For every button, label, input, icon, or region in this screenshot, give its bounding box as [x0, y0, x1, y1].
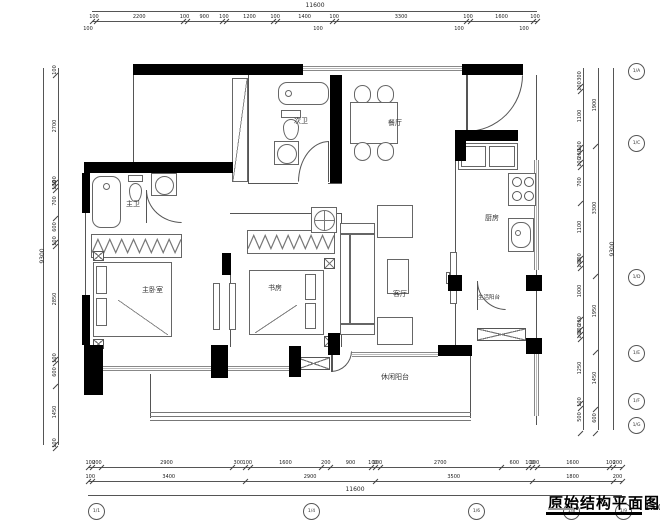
sofa-armrest-bottom: [340, 324, 375, 335]
wall-kitchen-top: [455, 130, 518, 141]
wall-top-left: [133, 64, 303, 75]
bed-master-pillow-1: [96, 266, 107, 294]
title-underline-accent: [548, 508, 574, 510]
dim-label: 100: [52, 430, 58, 456]
wall-pier-bottom-mid: [211, 345, 228, 378]
nightstand-study-1: [324, 258, 335, 269]
washer-icon: [477, 328, 526, 341]
balcony-edge-right: [470, 353, 471, 418]
dim-tick: [578, 431, 584, 437]
wall-right-pier-2: [526, 338, 542, 354]
dim-label: 1000: [577, 278, 583, 304]
dim-label: 200: [605, 460, 631, 466]
dim-line: [88, 467, 622, 468]
bed-study-pillow-1: [305, 274, 316, 300]
coffee-table: [387, 259, 409, 294]
dim-label: 100: [521, 460, 547, 466]
floor-plan-canvas: 1002200100900100120010014001003300100160…: [0, 0, 660, 529]
dim-line: [88, 481, 622, 482]
wall-bedroom-divider-pier: [222, 253, 231, 275]
dim-sub-label: 100: [75, 26, 101, 32]
wall-bath2-left: [248, 75, 249, 183]
dim-label: 100: [52, 57, 58, 83]
room-label-kitchen: 厨房: [485, 214, 499, 222]
dim-label: 1600: [489, 14, 515, 20]
wall-masterbath-top: [84, 162, 233, 173]
sofa-seat: [350, 234, 375, 324]
dim-label: 100: [262, 14, 288, 20]
wall-living-south: [438, 345, 472, 356]
plant-cross-icon: [314, 210, 334, 230]
dim-label: 1400: [292, 14, 318, 20]
dim-label: 600: [52, 359, 58, 385]
room-label-master-bedroom: 主卧室: [142, 286, 163, 294]
kitchen-sink-basin-icon: [511, 222, 531, 248]
dim-label: 200: [84, 460, 110, 466]
dim-label: 100: [577, 250, 583, 276]
wardrobe-study: [247, 230, 335, 254]
dim-label: 1250: [577, 355, 583, 381]
stove-burner-1: [512, 177, 522, 187]
wall-bedroom-divider-b: [230, 330, 231, 347]
dim-label: 700: [52, 188, 58, 214]
window-svcbalcony-east: [534, 354, 539, 416]
bedroom-door-panel-2: [229, 283, 236, 330]
dim-label: 1450: [592, 365, 598, 391]
wall-pier-bottom-left: [84, 345, 103, 395]
wall-pier-balcony-door: [328, 333, 340, 355]
room-label-master-bath: 主卫: [126, 200, 140, 208]
dim-label: 200: [313, 460, 339, 466]
dim-label: 700: [577, 169, 583, 195]
bed-study-pillow-2: [305, 303, 316, 329]
dim-overall-right: 9300: [610, 231, 616, 267]
dim-label: 600: [592, 405, 598, 431]
dim-label: 2200: [126, 14, 152, 20]
bed-study-fold: [255, 305, 297, 333]
stove-burner-2: [524, 177, 534, 187]
dim-overall-top: 11600: [295, 3, 335, 9]
wall-bath2-bottom-a: [248, 183, 298, 184]
sink2-basin-icon: [277, 144, 297, 164]
dim-label: 3300: [592, 195, 598, 221]
room-label-second-bath: 次卫: [294, 117, 308, 125]
dim-label: 3400: [156, 474, 182, 480]
grid-bubble-bottom: 1/6: [468, 503, 485, 520]
dim-sub-label: 100: [511, 26, 537, 32]
bathtub1-drain: [103, 183, 110, 190]
nightstand-master-1: [93, 251, 104, 261]
dim-label: 1100: [577, 214, 583, 240]
hall-cabinet-diagonal: [233, 79, 247, 181]
window-study-south: [228, 366, 289, 371]
wall-left-pier-1: [82, 173, 90, 213]
dim-label: 1800: [560, 474, 586, 480]
dining-chair-3: [354, 142, 371, 161]
dim-label: 100: [81, 14, 107, 20]
dim-sub-label: 100: [305, 26, 331, 32]
sofa-armrest-top: [340, 223, 375, 234]
dim-label: 2900: [154, 460, 180, 466]
wardrobe-zigzag-icon: [248, 231, 334, 253]
dim-label: 100: [321, 14, 347, 20]
dim-label: 3300: [388, 14, 414, 20]
dim-label: 2700: [52, 113, 58, 139]
dim-line: [598, 68, 599, 430]
dim-label: 100: [77, 474, 103, 480]
dim-label: 1600: [560, 460, 586, 466]
title-underline: [546, 512, 642, 515]
room-label-service-balcony: 生活阳台: [478, 294, 500, 302]
bath2-door-arc: [298, 141, 329, 182]
dim-label: 100: [234, 460, 260, 466]
grid-bubble-bottom: 1/4: [303, 503, 320, 520]
sofa-back: [340, 234, 350, 324]
armchair-bottom: [377, 317, 413, 345]
bed-master-fold: [118, 300, 168, 335]
sink1-basin-icon: [155, 176, 174, 195]
dim-overall-left: 9300: [40, 238, 46, 274]
dim-label: 3500: [441, 474, 467, 480]
wall-kitchen-balcony-pier-left: [448, 275, 462, 291]
grid-bubble-right: 1/D: [628, 269, 645, 286]
drawing-scale: 1:50: [645, 503, 660, 512]
window-living-south: [352, 352, 438, 357]
dim-tick: [593, 431, 599, 437]
dim-sub-label: 100: [446, 26, 472, 32]
dim-label: 100: [577, 321, 583, 347]
dim-label: 1100: [577, 103, 583, 129]
wall-left-pier-2: [82, 295, 90, 345]
entry-door-arc: [466, 75, 523, 132]
bedroom-door-panel-1: [213, 283, 220, 330]
dim-label: 1450: [52, 399, 58, 425]
armchair-top: [377, 205, 413, 238]
dim-label: 1950: [592, 298, 598, 324]
dim-label: 100: [522, 14, 548, 20]
grid-bubble-right: 1/G: [628, 417, 645, 434]
dining-chair-4: [377, 142, 394, 161]
ac-unit-icon: [297, 357, 330, 370]
dim-label: 500: [577, 404, 583, 430]
wall-kitchen-balcony-pier-right: [526, 275, 542, 291]
wall-top-right: [462, 64, 523, 75]
wall-bath2-right: [330, 75, 342, 183]
wardrobe-master: [91, 234, 182, 258]
dim-label: 1900: [592, 92, 598, 118]
dim-overall-bottom: 11600: [335, 487, 375, 493]
dim-label: 2900: [297, 474, 323, 480]
wall-bath2-bottom-b: [328, 183, 342, 184]
toilet1-tank-icon: [128, 175, 143, 182]
stove-burner-3: [512, 191, 522, 201]
stove-burner-4: [524, 191, 534, 201]
dim-label: 2850: [52, 286, 58, 312]
wall-pier-bottom-right: [289, 346, 301, 377]
wardrobe-zigzag-icon: [92, 235, 181, 257]
grid-bubble-bottom: 1/1: [88, 503, 105, 520]
bathtub2-drain: [285, 90, 292, 97]
kitchen-sink-faucet: [515, 230, 521, 236]
grid-bubble-right: 1/C: [628, 135, 645, 152]
room-label-leisure-balcony: 休闲阳台: [381, 373, 409, 381]
wall-kitchen-stub: [455, 141, 466, 161]
grid-bubble-right: 1/F: [628, 393, 645, 410]
dim-label: 100: [455, 14, 481, 20]
bed-master-pillow-2: [96, 298, 107, 326]
room-label-dining: 餐厅: [388, 119, 402, 127]
grid-bubble-right: 1/A: [628, 63, 645, 80]
dim-label: 1200: [237, 14, 263, 20]
room-label-study: 书房: [268, 284, 282, 292]
dim-label: 1600: [272, 460, 298, 466]
window-masterbed-south: [103, 366, 211, 371]
dim-label: 200: [605, 474, 631, 480]
dim-label: 100: [211, 14, 237, 20]
dim-line-overall: [88, 495, 622, 496]
window-dining-north: [302, 66, 462, 71]
room-label-living: 客厅: [393, 290, 407, 298]
balcony-window-band: [150, 412, 471, 421]
wall-upperleft-edge: [133, 75, 134, 162]
dim-label: 2700: [427, 460, 453, 466]
kitchen-counter-box-2: [489, 146, 515, 167]
dim-line: [58, 68, 59, 445]
dim-line-overall: [92, 11, 537, 12]
dim-label: 100: [364, 460, 390, 466]
grid-bubble-right: 1/E: [628, 345, 645, 362]
dim-line: [583, 68, 584, 430]
